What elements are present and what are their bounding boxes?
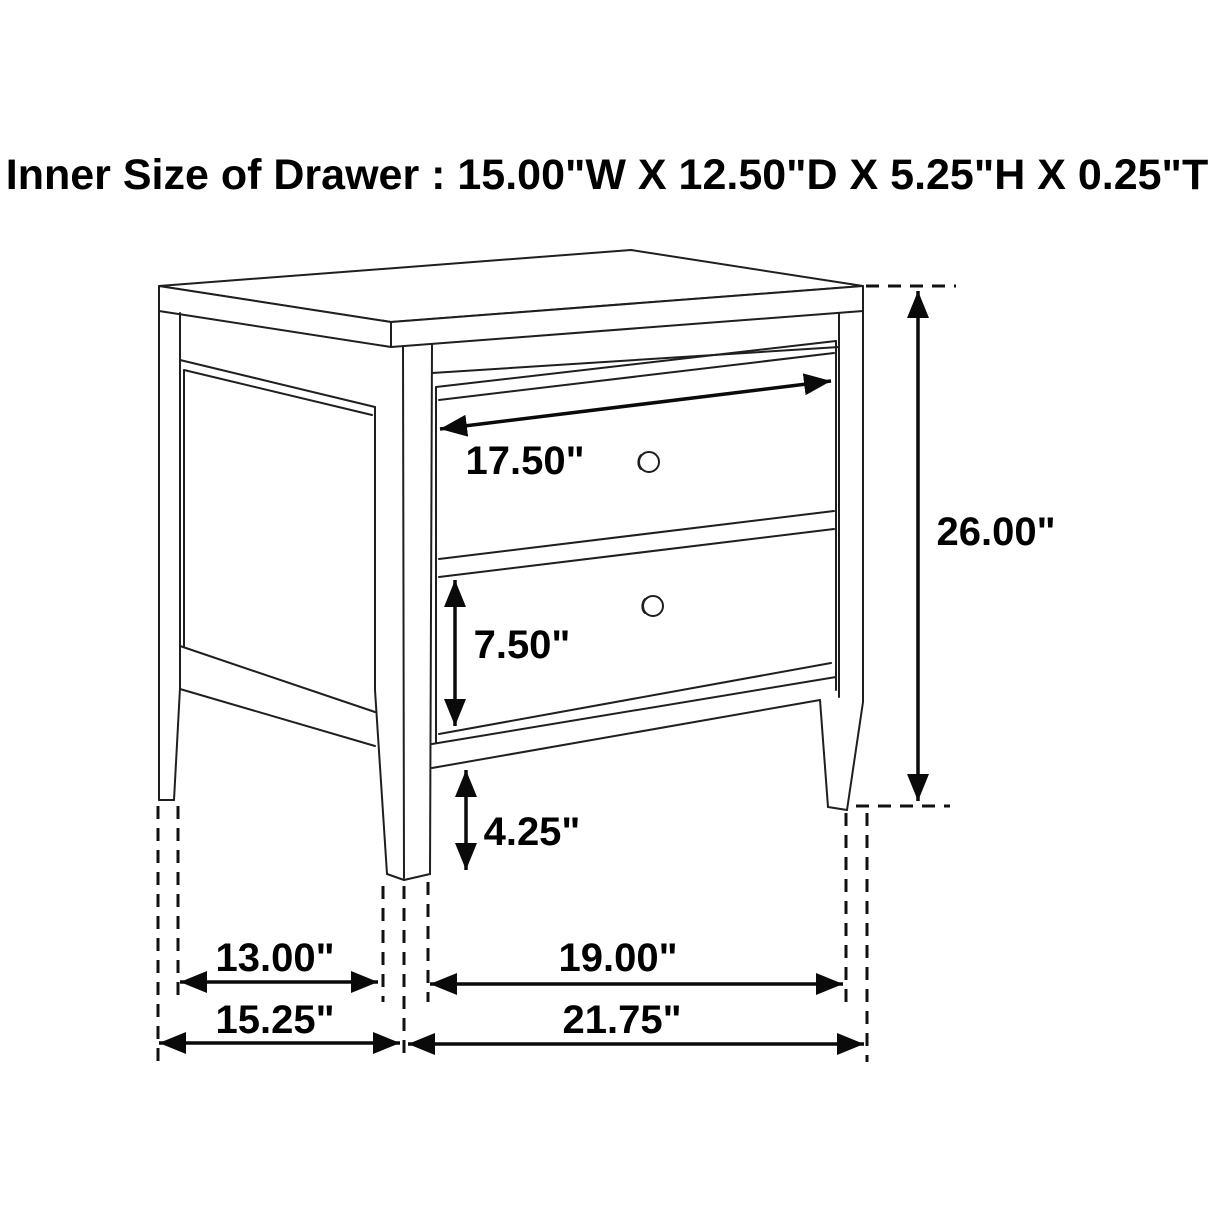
- overall-width-label: 21.75": [562, 998, 681, 1042]
- nightstand-dimension-diagram: Inner Size of Drawer : 15.00"W X 12.50"D…: [0, 0, 1214, 1214]
- nightstand-line-art: [159, 250, 863, 880]
- leg-clearance-label: 4.25": [484, 810, 581, 854]
- diagram-canvas: Inner Size of Drawer : 15.00"W X 12.50"D…: [0, 0, 1214, 1214]
- side-overall-depth-label: 15.25": [215, 998, 334, 1042]
- dimension-overall-height: 26.00": [918, 291, 1056, 801]
- top-drawer-knob-icon: [638, 452, 659, 472]
- dimension-side-overall-depth: 15.25": [159, 998, 400, 1043]
- front-face: [404, 311, 863, 880]
- drawer-face-height-label: 7.50": [474, 623, 571, 667]
- left-side-panel: [159, 311, 404, 880]
- bottom-drawer-knob-icon: [642, 596, 663, 616]
- dimension-side-leg-span: 13.00": [180, 936, 378, 982]
- dimension-drawer-face-height: 7.50": [455, 580, 570, 726]
- dimension-overall-width: 21.75": [408, 998, 864, 1044]
- side-leg-span-label: 13.00": [215, 936, 334, 980]
- front-leg-span-label: 19.00": [558, 936, 677, 980]
- dimension-drawer-front-width: 17.50": [440, 381, 831, 483]
- drawer-front-width-label: 17.50": [465, 439, 584, 483]
- overall-height-label: 26.00": [936, 510, 1055, 554]
- diagram-title: Inner Size of Drawer : 15.00"W X 12.50"D…: [6, 151, 1208, 199]
- dimension-leg-clearance: 4.25": [466, 770, 580, 870]
- dimension-front-leg-span: 19.00": [430, 936, 843, 984]
